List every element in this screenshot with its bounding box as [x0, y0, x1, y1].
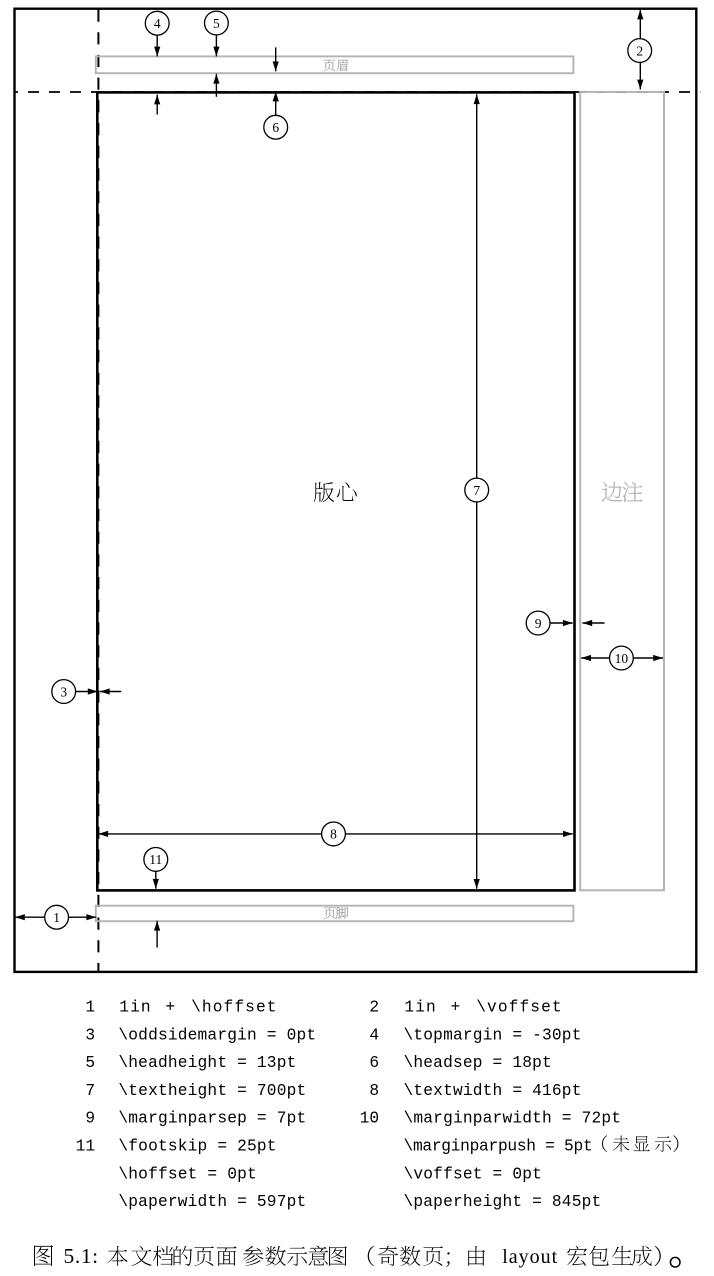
- svg-text:\footskip = 25pt: \footskip = 25pt: [118, 1138, 276, 1156]
- svg-text:\paperheight = 845pt: \paperheight = 845pt: [404, 1193, 602, 1211]
- svg-text:\textheight = 700pt: \textheight = 700pt: [118, 1082, 306, 1100]
- svg-text:7: 7: [473, 483, 480, 498]
- svg-text:4: 4: [154, 16, 161, 31]
- svg-text:5.1:: 5.1:: [64, 1244, 99, 1268]
- svg-text:\marginparwidth = 72pt: \marginparwidth = 72pt: [404, 1110, 622, 1128]
- svg-text:5: 5: [85, 1054, 95, 1072]
- svg-text:+: +: [165, 999, 176, 1017]
- svg-text:10: 10: [615, 651, 629, 666]
- svg-text:3: 3: [85, 1026, 95, 1044]
- svg-text:\marginparpush = 5pt: \marginparpush = 5pt: [404, 1138, 593, 1156]
- svg-text:\headheight = 13pt: \headheight = 13pt: [118, 1054, 296, 1072]
- svg-text:8: 8: [369, 1082, 379, 1100]
- svg-text:\oddsidemargin = 0pt: \oddsidemargin = 0pt: [118, 1026, 316, 1044]
- svg-text:10: 10: [360, 1110, 379, 1128]
- svg-text:11: 11: [149, 852, 162, 867]
- svg-text:\voffset = 0pt: \voffset = 0pt: [404, 1165, 543, 1183]
- svg-text:\voffset: \voffset: [476, 999, 563, 1017]
- svg-text:\textwidth = 416pt: \textwidth = 416pt: [404, 1082, 582, 1100]
- svg-text:7: 7: [85, 1082, 95, 1100]
- svg-text:1in: 1in: [119, 999, 151, 1017]
- svg-text:1in: 1in: [404, 999, 436, 1017]
- svg-text:6: 6: [272, 120, 279, 135]
- svg-text:2: 2: [636, 43, 643, 58]
- svg-text:\hoffset: \hoffset: [191, 999, 278, 1017]
- svg-text:11: 11: [76, 1138, 95, 1156]
- svg-text:layout: layout: [502, 1246, 558, 1268]
- svg-text:9: 9: [85, 1110, 95, 1128]
- svg-text:8: 8: [330, 827, 337, 842]
- svg-text:\paperwidth = 597pt: \paperwidth = 597pt: [118, 1193, 306, 1211]
- svg-text:+: +: [451, 999, 462, 1017]
- svg-text:\topmargin = -30pt: \topmargin = -30pt: [404, 1026, 582, 1044]
- svg-text:2: 2: [369, 999, 379, 1017]
- svg-text:9: 9: [535, 616, 542, 631]
- svg-text:1: 1: [85, 999, 95, 1017]
- svg-text:\marginparsep = 7pt: \marginparsep = 7pt: [118, 1110, 306, 1128]
- svg-text:\headsep = 18pt: \headsep = 18pt: [404, 1054, 552, 1072]
- svg-text:5: 5: [213, 16, 220, 31]
- svg-text:6: 6: [369, 1054, 379, 1072]
- svg-text:\hoffset = 0pt: \hoffset = 0pt: [118, 1165, 257, 1183]
- svg-text:3: 3: [60, 684, 67, 699]
- svg-text:4: 4: [369, 1026, 379, 1044]
- svg-text:1: 1: [53, 910, 60, 925]
